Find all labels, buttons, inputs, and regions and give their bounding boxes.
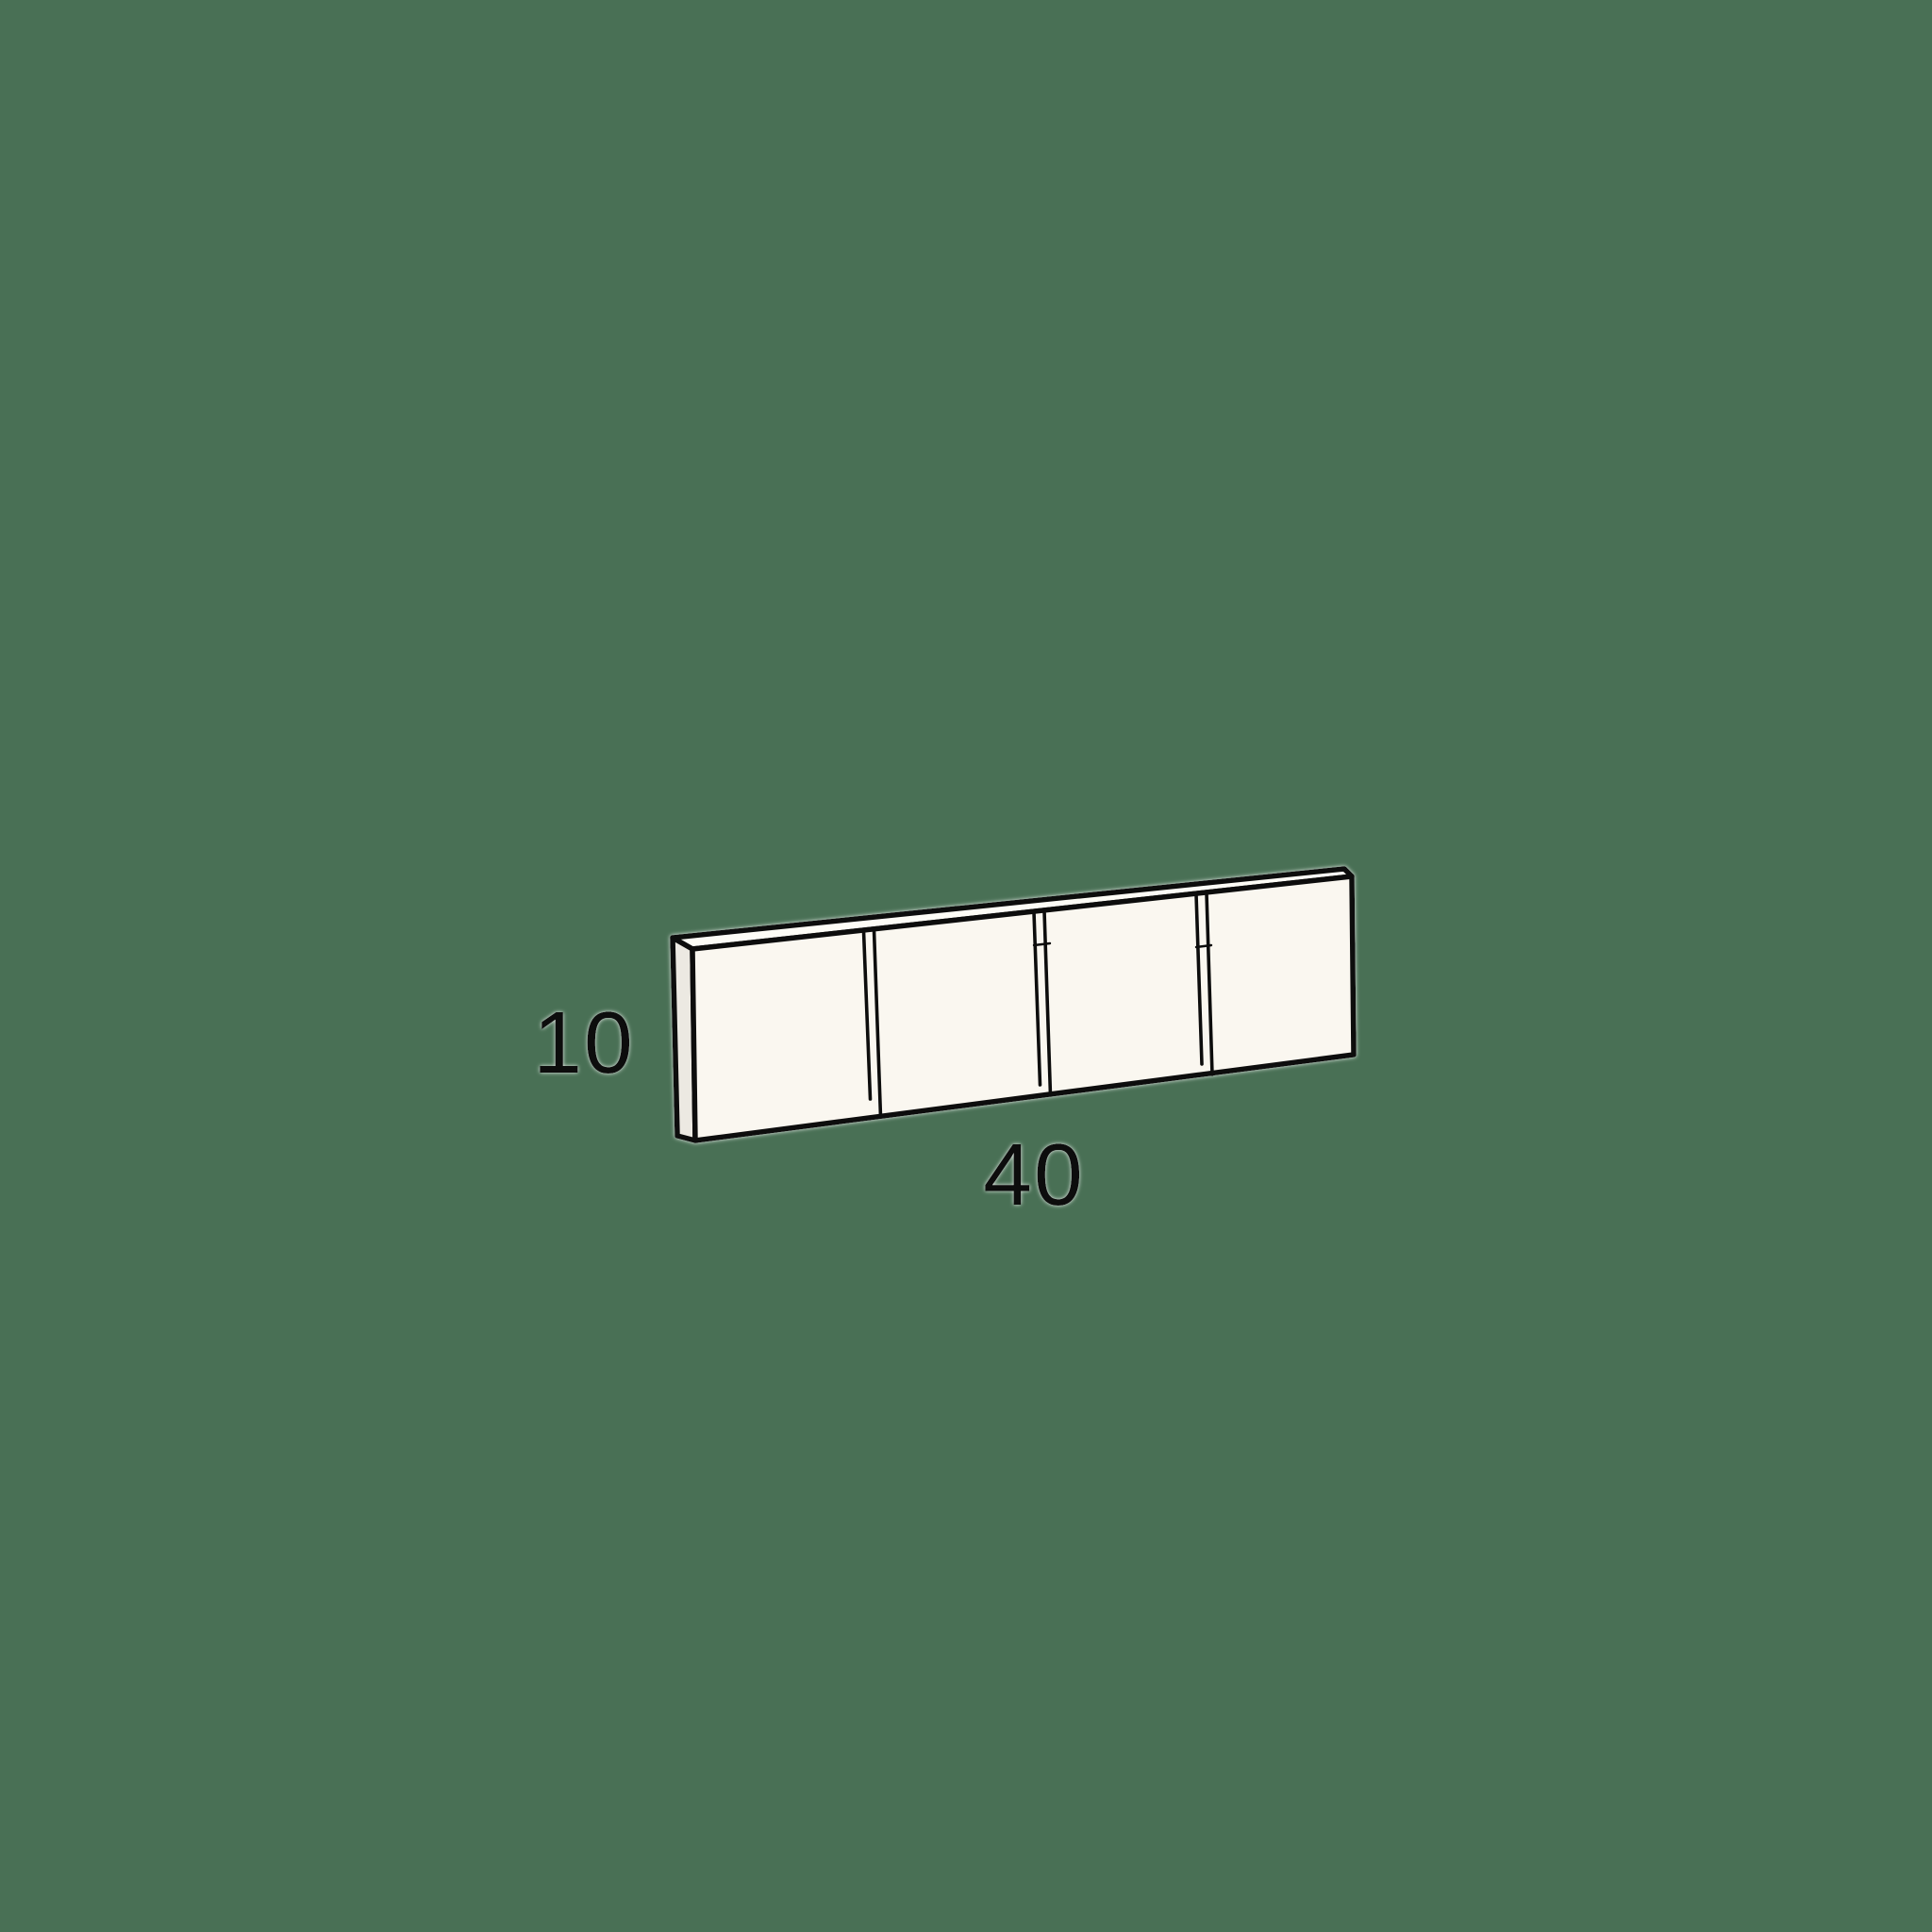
panel-dimension-diagram: 10 40 xyxy=(0,0,1932,1932)
height-dimension-label: 10 xyxy=(533,993,634,1091)
diagram-canvas: 10 40 xyxy=(0,0,1932,1932)
panel-strip-front-face xyxy=(692,876,1354,1141)
width-dimension-label: 40 xyxy=(983,1125,1084,1224)
